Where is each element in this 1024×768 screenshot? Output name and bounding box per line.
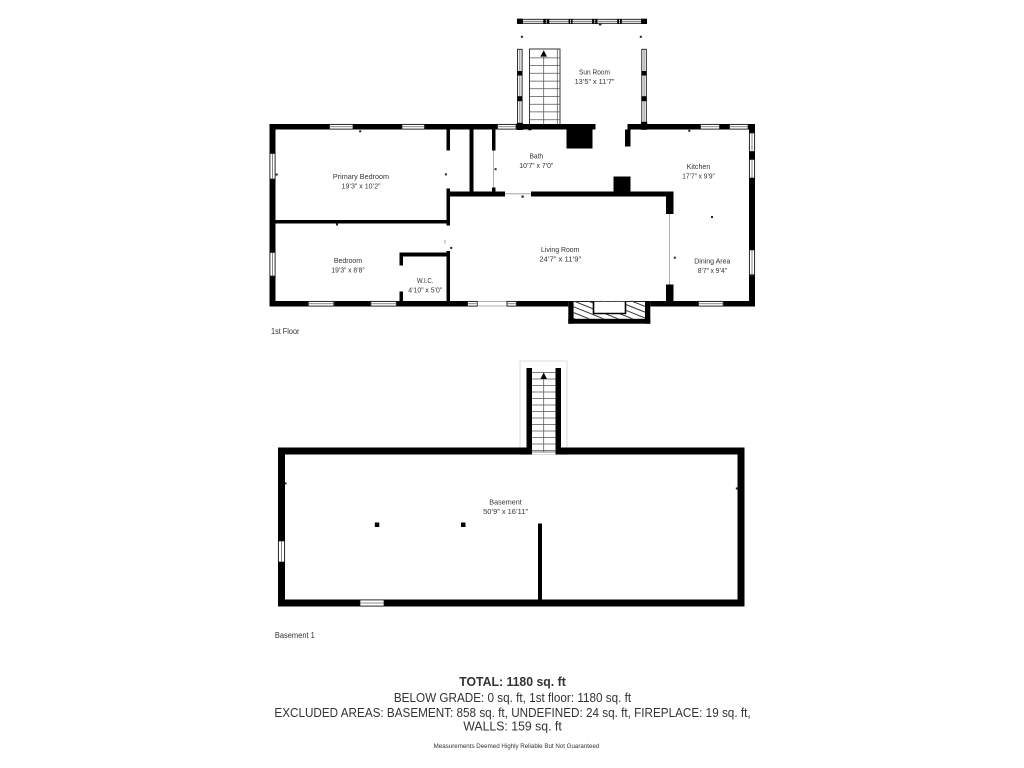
svg-text:Measurements Deemed Highly Rel: Measurements Deemed Highly Reliable But … <box>434 743 600 750</box>
svg-text:EXCLUDED AREAS: BASEMENT: 858: EXCLUDED AREAS: BASEMENT: 858 sq. ft, UN… <box>274 706 750 720</box>
svg-text:Kitchen: Kitchen <box>687 162 711 171</box>
svg-text:W.I.C.: W.I.C. <box>417 276 434 285</box>
svg-text:Bedroom: Bedroom <box>334 256 362 265</box>
svg-text:10’7” x 7’0”: 10’7” x 7’0” <box>519 161 554 170</box>
svg-text:Living Room: Living Room <box>541 245 579 254</box>
svg-text:24’7” x 11’9”: 24’7” x 11’9” <box>539 255 581 264</box>
svg-text:Bath: Bath <box>529 152 543 161</box>
svg-text:Sun Room: Sun Room <box>579 67 610 76</box>
svg-text:4’10” x 5’0”: 4’10” x 5’0” <box>408 286 442 295</box>
svg-text:19’3” x 8’8”: 19’3” x 8’8” <box>331 266 365 275</box>
svg-text:BELOW GRADE: 0 sq. ft, 1st flo: BELOW GRADE: 0 sq. ft, 1st floor: 1180 s… <box>394 691 632 705</box>
svg-text:TOTAL: 1180 sq. ft: TOTAL: 1180 sq. ft <box>459 675 566 689</box>
svg-text:8’7” x 9’4”: 8’7” x 9’4” <box>698 266 728 275</box>
svg-text:WALLS: 159 sq. ft: WALLS: 159 sq. ft <box>463 720 562 734</box>
svg-text:Basement 1: Basement 1 <box>275 631 315 640</box>
svg-text:Basement: Basement <box>489 498 521 507</box>
svg-text:17’7” x 9’9”: 17’7” x 9’9” <box>682 172 715 181</box>
svg-text:Dining Area: Dining Area <box>694 256 731 265</box>
svg-text:19’3” x 10’2”: 19’3” x 10’2” <box>342 182 382 191</box>
svg-text:1st Floor: 1st Floor <box>271 327 300 336</box>
svg-text:13’5” x 11’7”: 13’5” x 11’7” <box>575 77 615 86</box>
svg-text:50’9” x 16’11”: 50’9” x 16’11” <box>483 507 528 516</box>
svg-text:Primary Bedroom: Primary Bedroom <box>333 172 389 181</box>
